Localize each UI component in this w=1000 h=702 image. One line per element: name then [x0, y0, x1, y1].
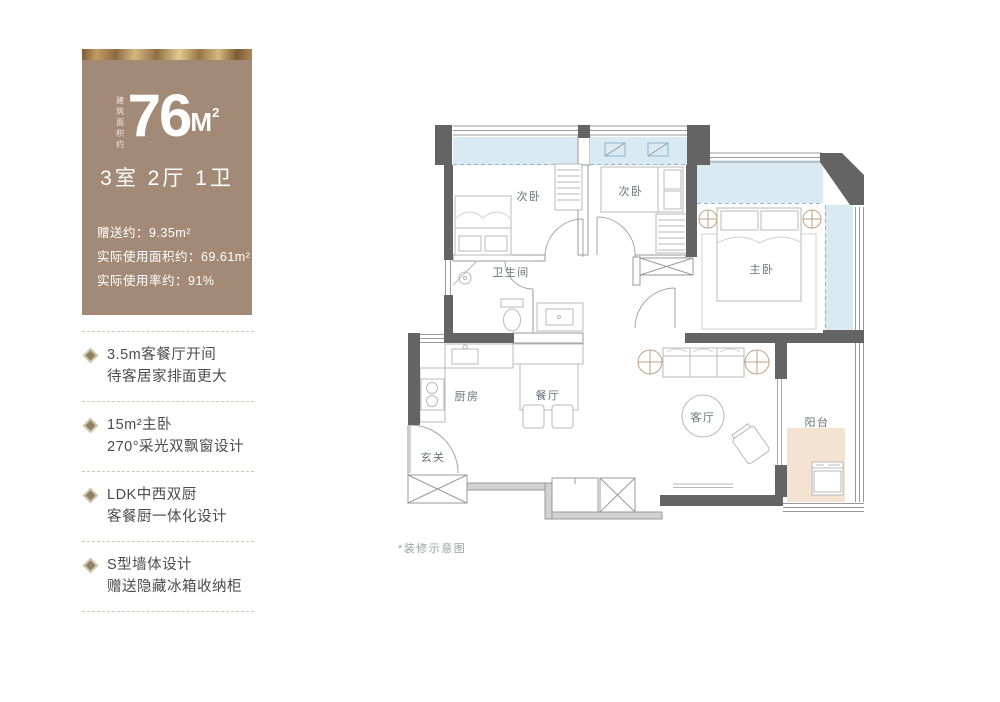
diamond-bullet-icon: [83, 558, 99, 574]
room-label-bathroom: 卫生间: [492, 265, 530, 279]
area-row: 建筑面积约 76 M2: [82, 89, 252, 151]
rooms-summary: 3室 2厅 1卫: [82, 162, 252, 192]
room-label-bedroom-mid: 次卧: [619, 184, 644, 198]
area-unit-exponent: 2: [212, 105, 219, 120]
area-unit: M2: [190, 105, 219, 138]
diamond-bullet-icon: [83, 418, 99, 434]
feature-text: 3.5m客餐厅开间 待客居家排面更大: [107, 345, 227, 388]
feature-line2: 客餐厨一体化设计: [107, 507, 227, 529]
detail-usable-area: 实际使用面积约：69.61m²: [97, 245, 252, 269]
s-wall-bottom: [408, 475, 662, 519]
feature-line1: LDK中西双厨: [107, 485, 227, 507]
feature-line1: S型墙体设计: [107, 555, 242, 577]
feature-line1: 3.5m客餐厅开间: [107, 345, 227, 367]
feature-item-s-wall: S型墙体设计 赠送隐藏冰箱收纳柜: [82, 541, 254, 611]
feature-item-master-window: 15m²主卧 270°采光双飘窗设计: [82, 401, 254, 471]
room-label-kitchen: 厨房: [455, 390, 480, 403]
feature-item-living-width: 3.5m客餐厅开间 待客居家排面更大: [82, 331, 254, 401]
detail-usage-rate: 实际使用率约：91%: [97, 269, 252, 293]
card-top-wood-strip: [82, 49, 252, 60]
feature-item-ldk-kitchen: LDK中西双厨 客餐厨一体化设计: [82, 471, 254, 541]
room-label-bedroom-left: 次卧: [517, 189, 542, 203]
room-label-balcony: 阳台: [805, 415, 830, 429]
feature-text: LDK中西双厨 客餐厨一体化设计: [107, 485, 227, 528]
room-label-dining: 餐厅: [536, 388, 561, 402]
diamond-bullet-icon: [83, 488, 99, 504]
feature-text: 15m²主卧 270°采光双飘窗设计: [107, 415, 244, 458]
detail-gift-area: 赠送约：9.35m²: [97, 221, 252, 245]
divider: [82, 611, 254, 612]
furniture: [420, 164, 843, 495]
area-info-card: 建筑面积约 76 M2 3室 2厅 1卫 赠送约：9.35m² 实际使用面积约：…: [82, 49, 252, 315]
room-label-entry: 玄关: [421, 450, 446, 464]
area-unit-letter: M: [190, 107, 212, 137]
floorplan-svg: 次卧 次卧 主卧 卫生间 厨房 餐厅 客厅 阳台 玄关: [395, 105, 875, 565]
area-prefix-vertical: 建筑面积约: [115, 96, 125, 151]
plan-caption: *装修示意图: [398, 540, 466, 556]
feature-line2: 270°采光双飘窗设计: [107, 437, 244, 459]
room-label-master: 主卧: [750, 263, 775, 276]
feature-text: S型墙体设计 赠送隐藏冰箱收纳柜: [107, 555, 242, 598]
feature-list: 3.5m客餐厅开间 待客居家排面更大 15m²主卧 270°采光双飘窗设计 LD…: [82, 331, 254, 612]
feature-line2: 赠送隐藏冰箱收纳柜: [107, 577, 242, 599]
diamond-bullet-icon: [83, 348, 99, 364]
card-details: 赠送约：9.35m² 实际使用面积约：69.61m² 实际使用率约：91%: [97, 221, 252, 293]
area-number: 76: [128, 89, 191, 143]
feature-line2: 待客居家排面更大: [107, 367, 227, 389]
feature-line1: 15m²主卧: [107, 415, 244, 437]
room-label-living: 客厅: [691, 410, 716, 424]
floorplan: 次卧 次卧 主卧 卫生间 厨房 餐厅 客厅 阳台 玄关: [395, 105, 875, 570]
